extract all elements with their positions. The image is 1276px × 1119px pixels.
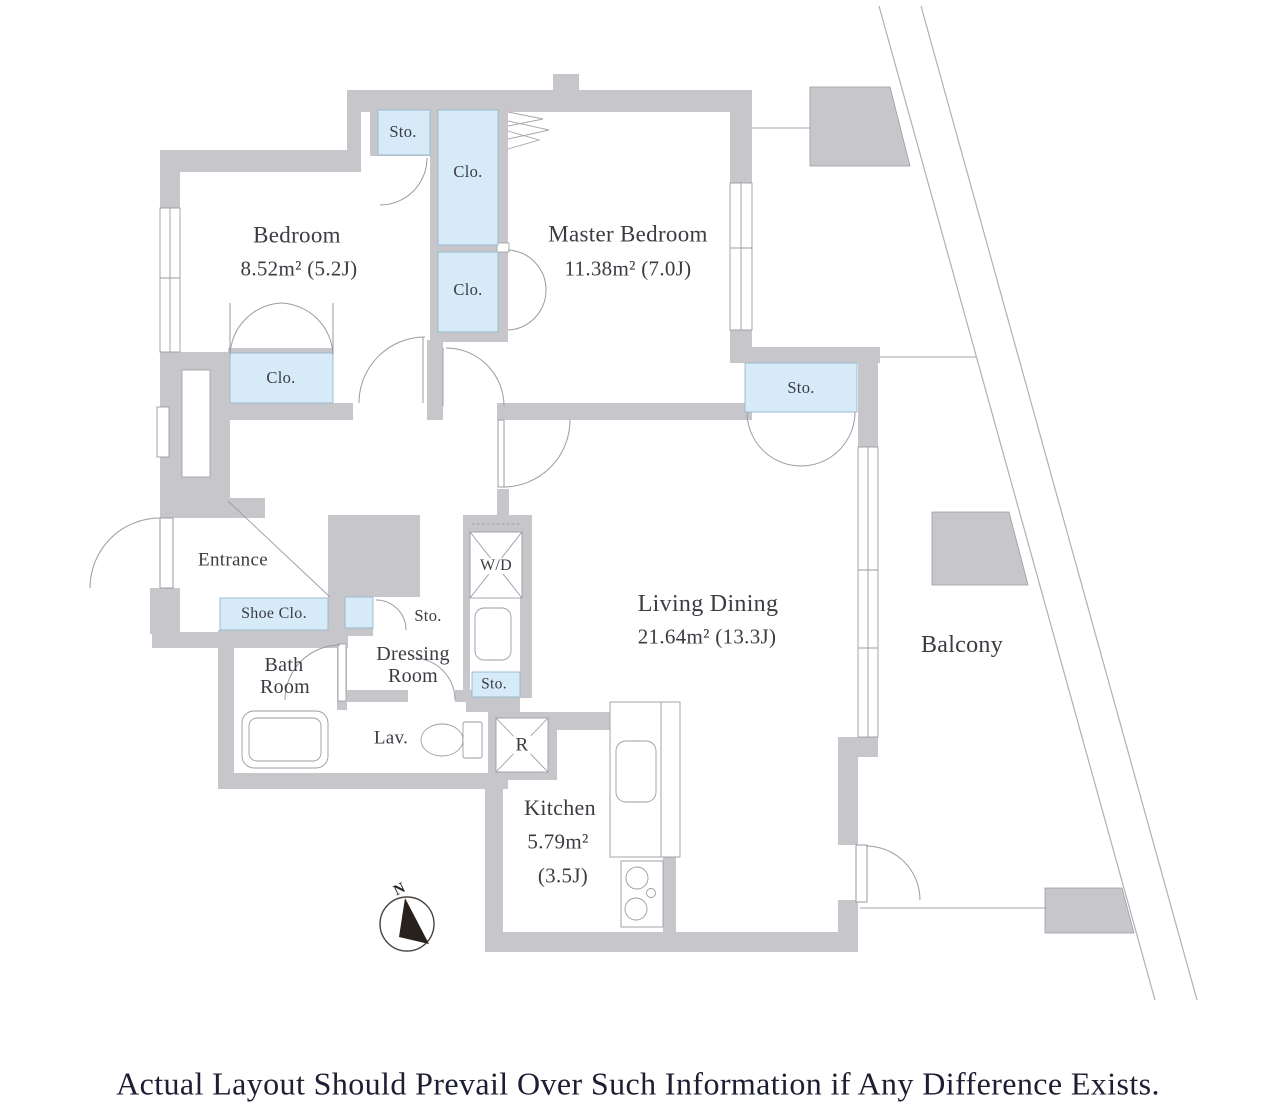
exterior-block-top: [810, 87, 910, 166]
hall-living-door: [498, 420, 570, 487]
disclaimer-text: Actual Layout Should Prevail Over Such I…: [116, 1066, 1160, 1103]
master-east-window: [730, 183, 752, 330]
label-entrance: Entrance: [198, 551, 268, 570]
label-washer-dryer: W/D: [478, 558, 514, 574]
compass: [380, 897, 434, 951]
bathtub: [242, 711, 328, 768]
entrance-door: [90, 518, 173, 588]
kitchen-counter: [610, 702, 680, 857]
pipe-space-niche: [182, 370, 210, 477]
exterior-block-bottom: [1045, 888, 1134, 933]
label-storage-living: Sto.: [787, 380, 814, 397]
master-bedroom-door: [443, 348, 504, 406]
toilet: [421, 722, 482, 758]
laundry-pan: [475, 608, 511, 660]
living-east-window: [858, 447, 878, 737]
living-storage-doors: [747, 412, 855, 466]
bedroom-closet-double-door: [230, 303, 333, 355]
floor-plan-page: Bedroom 8.52m² (5.2J) Master Bedroom 11.…: [0, 0, 1276, 1119]
label-closet-upper: Clo.: [453, 164, 482, 181]
label-kitchen-area: 5.79m²: [527, 832, 588, 853]
label-kitchen-tatami: (3.5J): [538, 866, 588, 887]
bath-sliding-door: [338, 644, 346, 701]
dressing-lav-opening: [408, 689, 455, 703]
label-closet-lower: Clo.: [453, 282, 482, 299]
label-storage-dressing: Sto.: [414, 608, 441, 625]
label-lavatory: Lav.: [374, 729, 408, 748]
dressing-storage-door: [376, 600, 406, 630]
stove: [621, 861, 663, 927]
label-balcony: Balcony: [921, 633, 1003, 657]
label-living-dining-name: Living Dining: [638, 592, 779, 616]
label-master-bedroom-area: 11.38m² (7.0J): [565, 259, 692, 280]
site-boundary-lines: [879, 6, 1197, 1000]
bedroom-west-window: [160, 208, 180, 352]
closet-divider-cap: [497, 243, 509, 252]
label-dressing-line2: Room: [388, 666, 438, 686]
label-storage-utility: Sto.: [481, 676, 507, 692]
label-closet-bedroom: Clo.: [266, 370, 295, 387]
label-bath-line1: Bath: [265, 655, 304, 675]
label-refrigerator: R: [514, 736, 531, 755]
entrance-slit-window: [157, 407, 169, 457]
label-shoe-closet: Shoe Clo.: [241, 606, 307, 622]
walls: [150, 74, 880, 952]
master-closet-doors: [508, 250, 546, 330]
exterior-block-middle: [932, 512, 1028, 585]
label-bedroom-area: 8.52m² (5.2J): [241, 259, 358, 280]
bedroom-door: [359, 337, 425, 403]
label-bath-line2: Room: [260, 677, 310, 697]
label-dressing-line1: Dressing: [376, 644, 450, 664]
compass-needle-icon: [399, 898, 429, 944]
storage-bedroom-door: [380, 158, 427, 205]
storage-box-dressing: [345, 597, 373, 628]
kitchen-sink: [616, 741, 656, 802]
balcony-door: [856, 845, 920, 902]
label-storage-bedroom-top: Sto.: [389, 124, 416, 141]
label-living-dining-area: 21.64m² (13.3J): [638, 627, 777, 648]
label-kitchen-name: Kitchen: [524, 797, 596, 819]
master-corner-chevrons: [508, 112, 549, 149]
label-bedroom-name: Bedroom: [253, 224, 341, 247]
floor-plan-drawing: [0, 0, 1276, 1119]
label-master-bedroom-name: Master Bedroom: [548, 223, 707, 246]
